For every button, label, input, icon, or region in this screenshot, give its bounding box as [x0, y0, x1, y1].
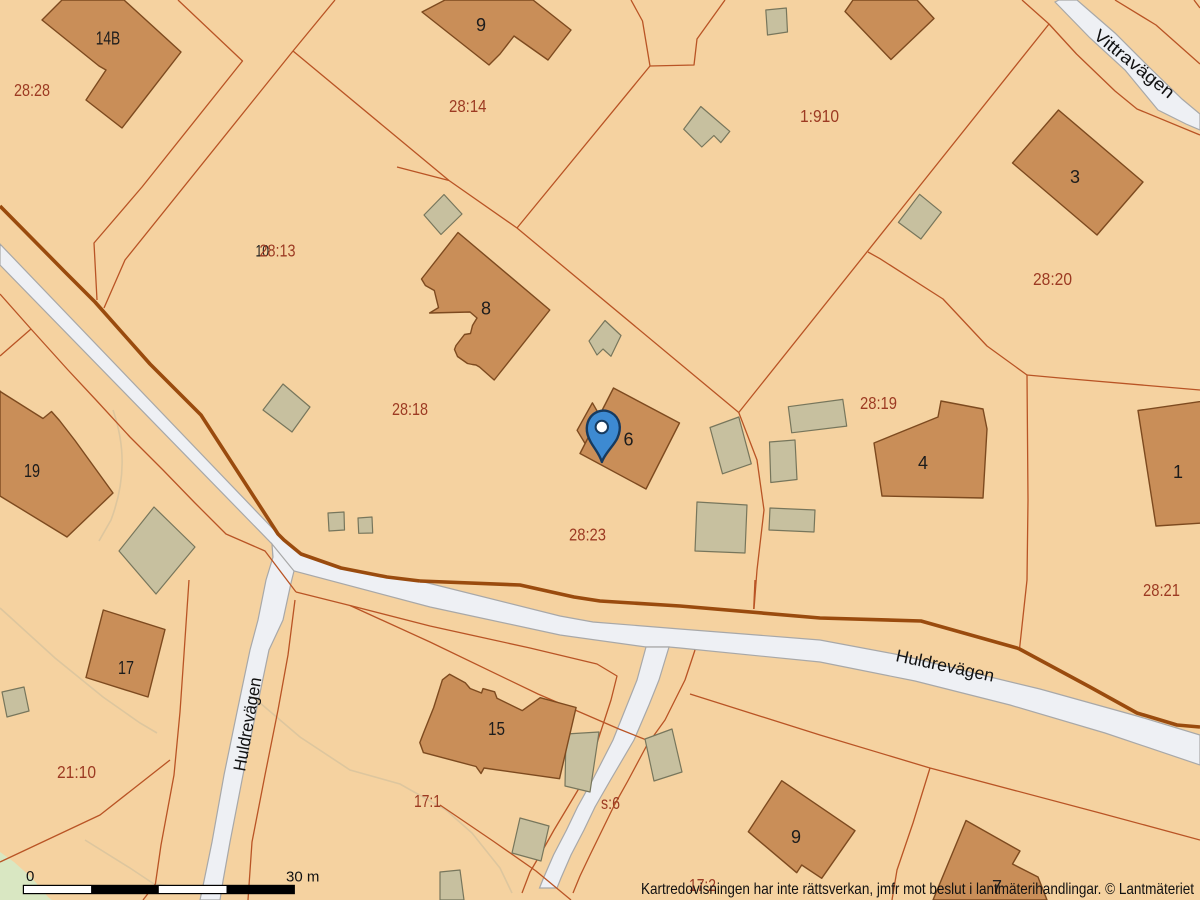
- svg-text:9: 9: [791, 827, 801, 847]
- svg-text:17:1: 17:1: [414, 791, 441, 811]
- svg-text:28:18: 28:18: [392, 399, 428, 419]
- svg-text:28:23: 28:23: [569, 525, 606, 545]
- svg-text:1: 1: [1173, 462, 1183, 482]
- svg-text:0: 0: [26, 868, 34, 885]
- svg-text:8: 8: [481, 299, 491, 319]
- svg-text:9: 9: [476, 15, 486, 35]
- svg-text:14B: 14B: [96, 29, 121, 49]
- svg-text:1:910: 1:910: [800, 106, 839, 126]
- svg-text:s:6: s:6: [601, 793, 620, 813]
- svg-text:4: 4: [918, 453, 928, 473]
- svg-text:28:21: 28:21: [1143, 580, 1180, 600]
- svg-text:3: 3: [1070, 167, 1080, 187]
- svg-text:21:10: 21:10: [57, 762, 96, 782]
- svg-text:30 m: 30 m: [286, 869, 319, 886]
- svg-text:28:19: 28:19: [860, 393, 897, 413]
- svg-text:15: 15: [488, 719, 505, 739]
- svg-text:28:13: 28:13: [260, 241, 296, 261]
- svg-text:28:28: 28:28: [14, 80, 50, 100]
- svg-text:28:14: 28:14: [449, 96, 487, 116]
- svg-text:6: 6: [624, 430, 634, 450]
- svg-text:28:20: 28:20: [1033, 269, 1072, 289]
- svg-text:17: 17: [118, 658, 134, 678]
- svg-text:19: 19: [24, 461, 40, 481]
- svg-text:Kartredovisningen har inte rät: Kartredovisningen har inte rättsverkan, …: [641, 881, 1194, 898]
